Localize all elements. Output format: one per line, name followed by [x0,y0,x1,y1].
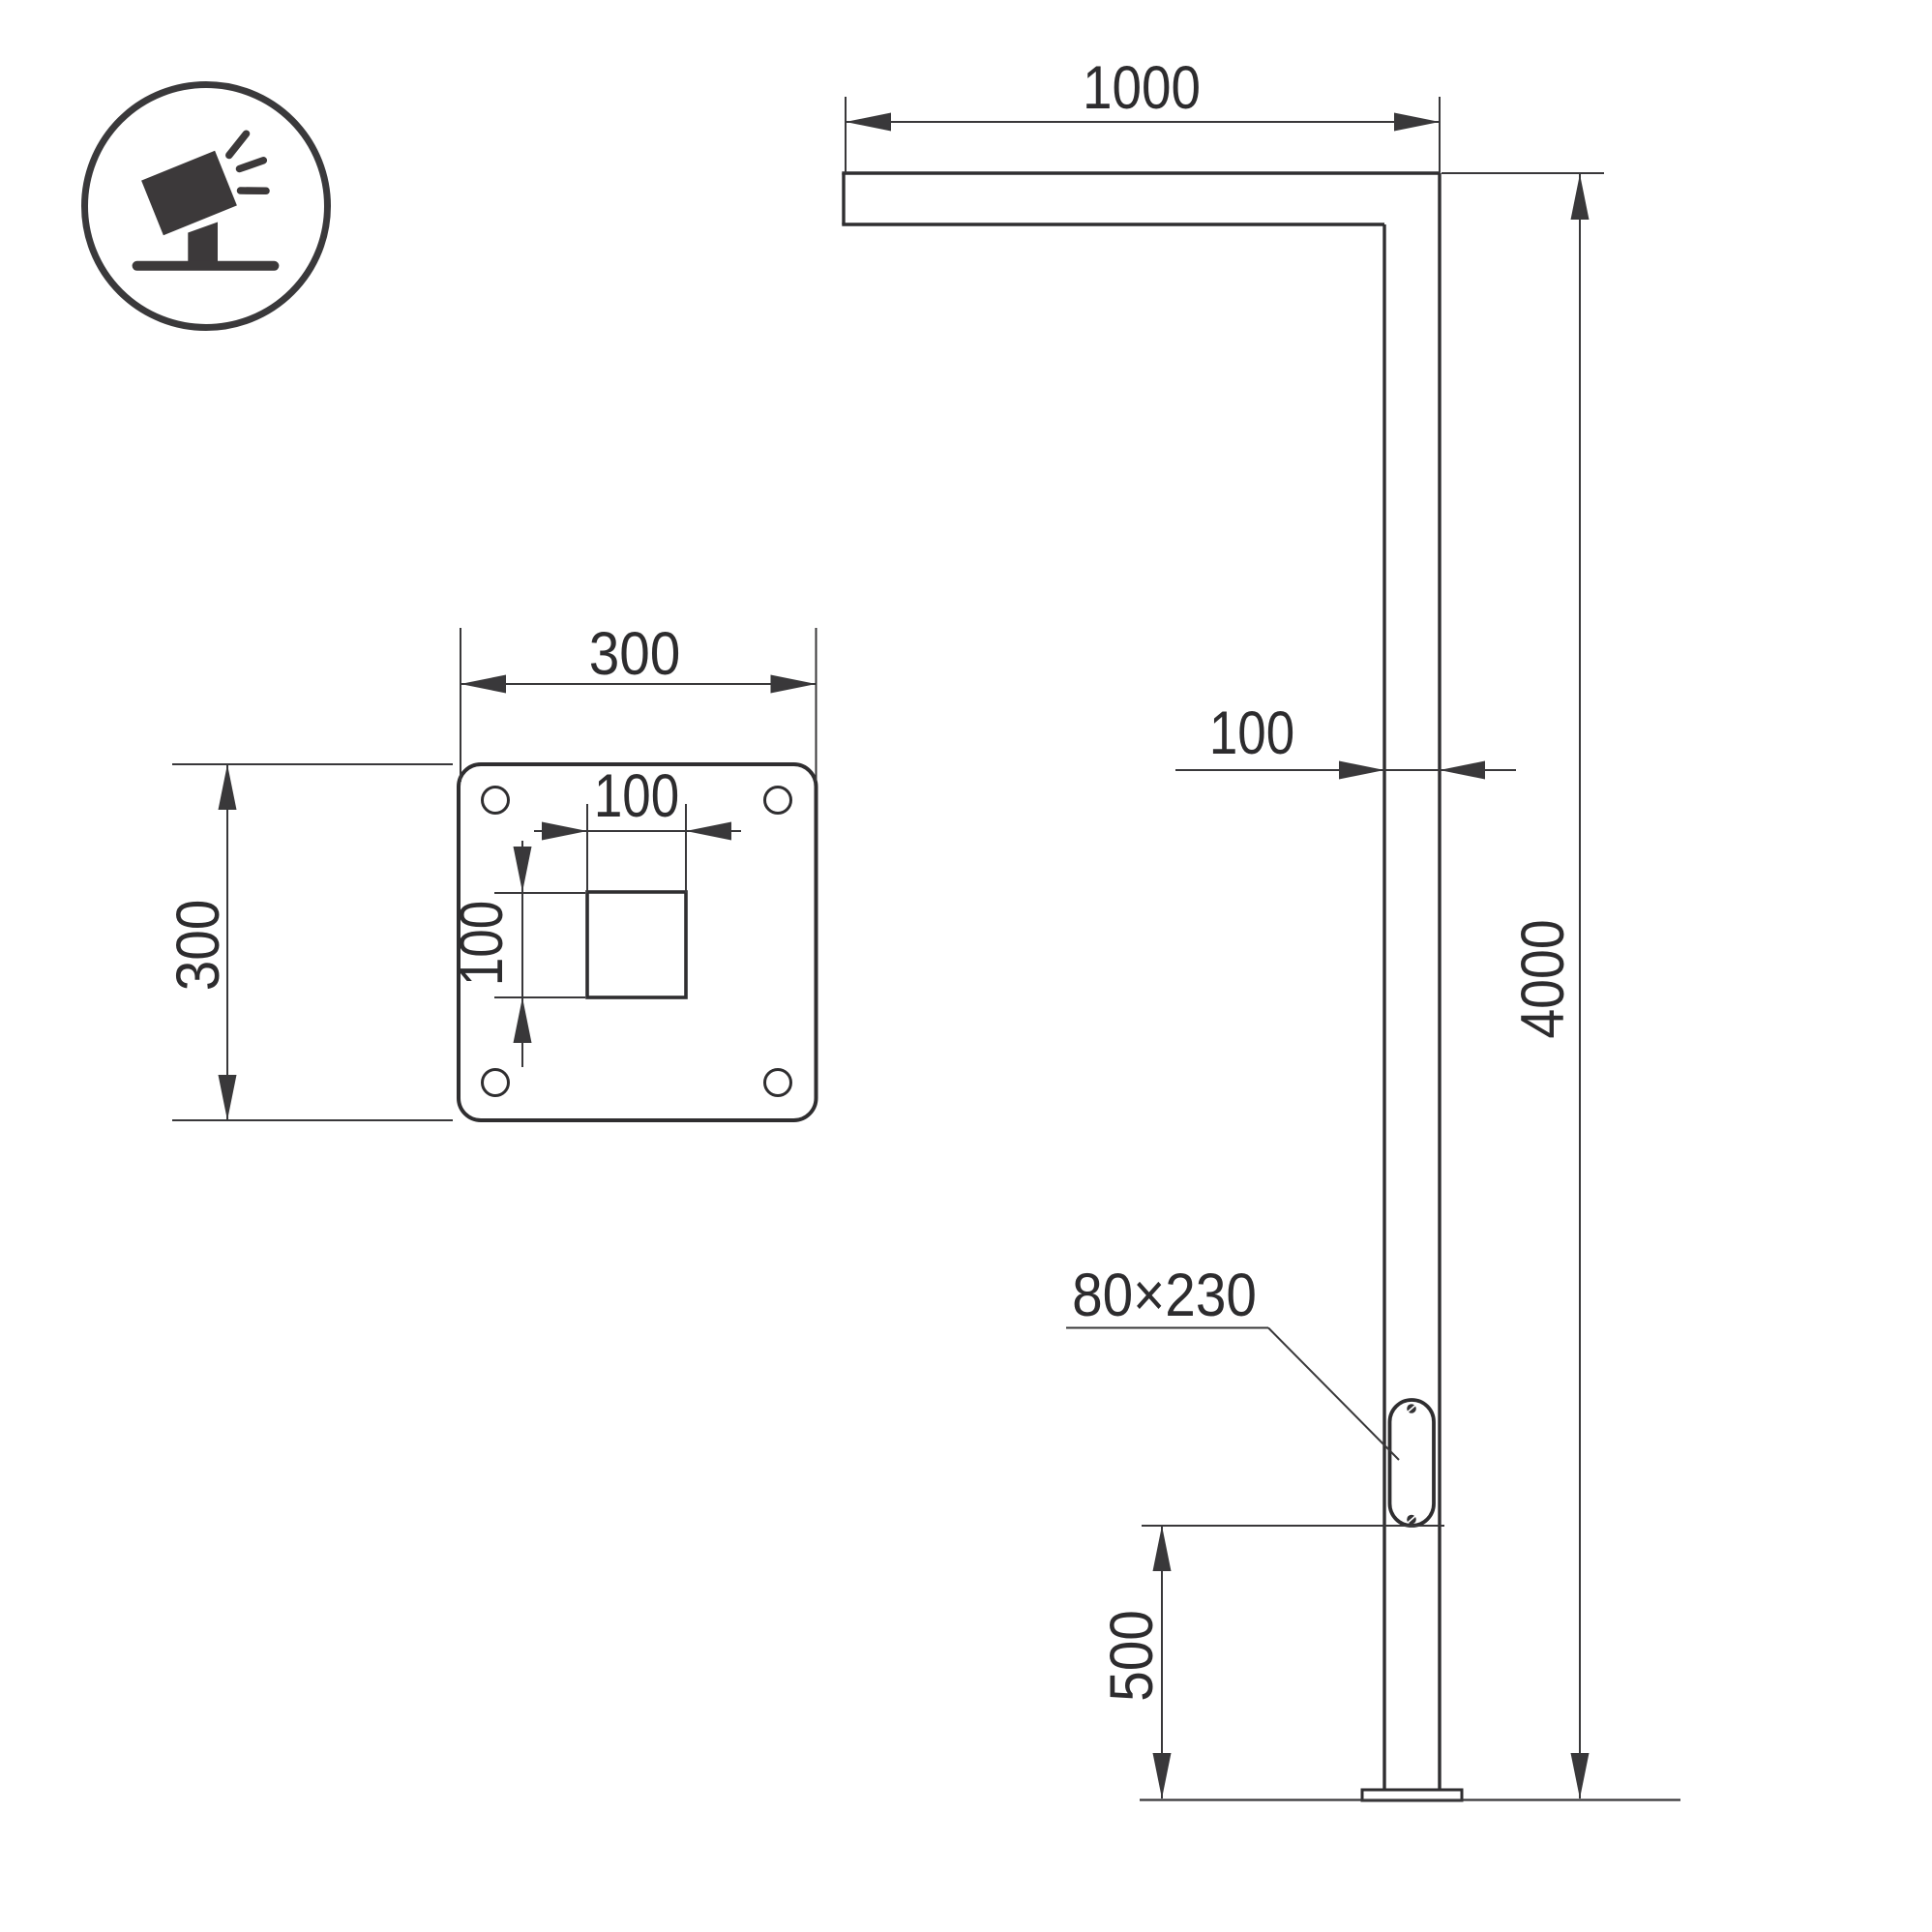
svg-text:1000: 1000 [1083,53,1201,121]
svg-text:100: 100 [594,762,679,830]
svg-text:100: 100 [448,901,516,986]
svg-text:100: 100 [1209,699,1294,767]
svg-text:500: 500 [1097,1610,1165,1702]
svg-text:4000: 4000 [1508,919,1577,1038]
svg-text:80×230: 80×230 [1072,1261,1257,1328]
svg-text:300: 300 [589,619,681,687]
svg-text:300: 300 [163,900,231,992]
